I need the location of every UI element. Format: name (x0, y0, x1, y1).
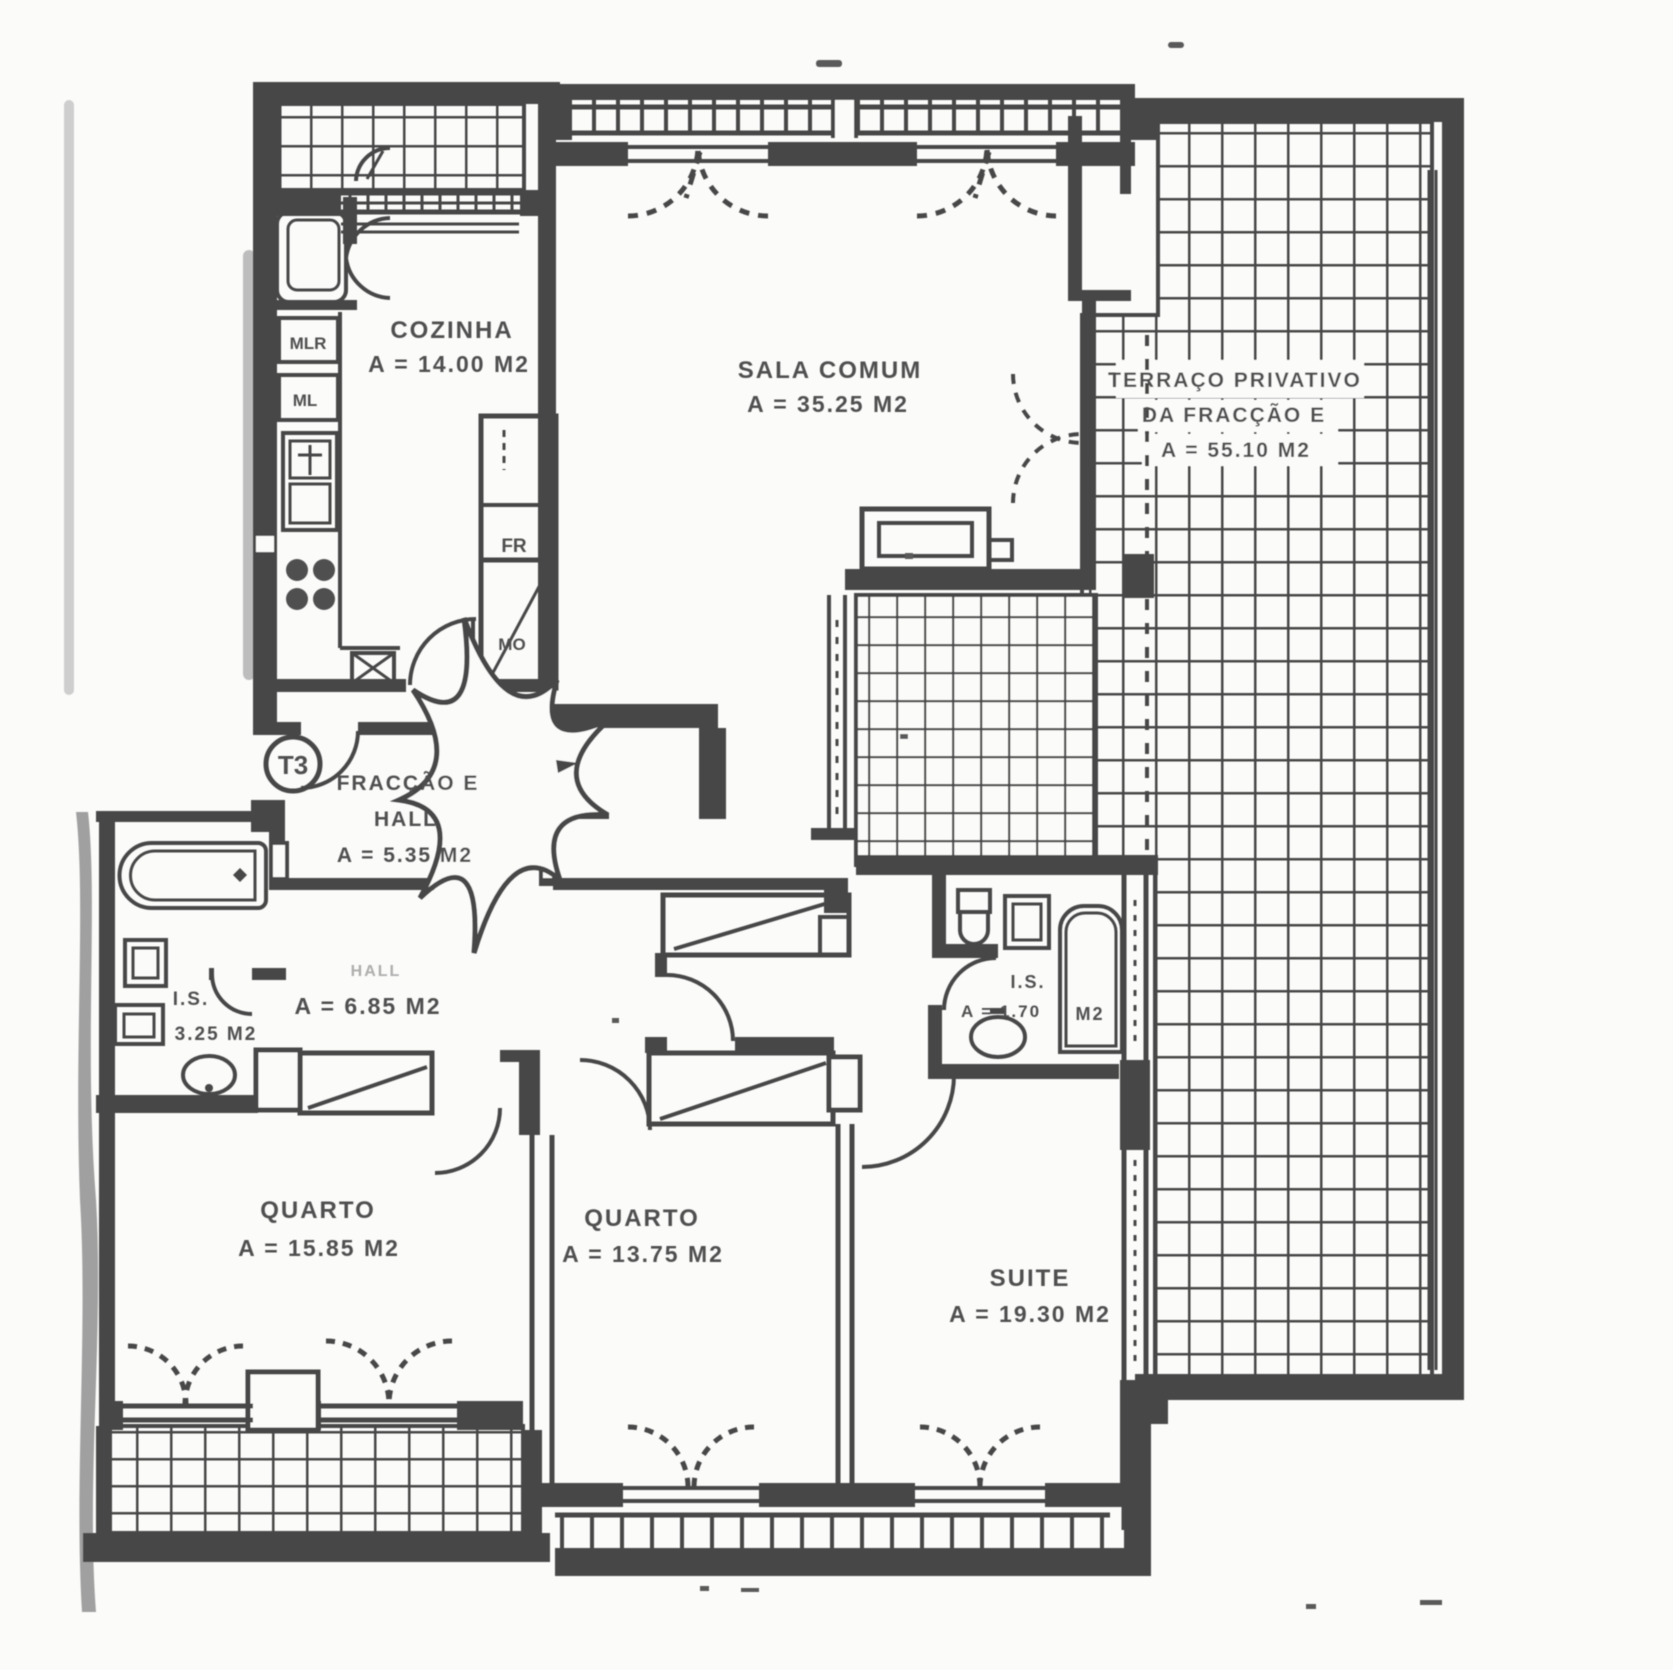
svg-text:QUARTO: QUARTO (584, 1205, 700, 1232)
svg-text:A = 5.35 M2: A = 5.35 M2 (337, 844, 473, 867)
svg-text:A = 19.30 M2: A = 19.30 M2 (949, 1301, 1111, 1327)
svg-text:FRACÇÃO E: FRACÇÃO E (337, 772, 480, 795)
svg-text:A = 13.75 M2: A = 13.75 M2 (562, 1241, 724, 1267)
svg-text:SALA COMUM: SALA COMUM (738, 357, 922, 384)
svg-text:TERRAÇO PRIVATIVO: TERRAÇO PRIVATIVO (1108, 369, 1362, 392)
svg-text:T3: T3 (278, 750, 308, 780)
svg-text:A = 55.10 M2: A = 55.10 M2 (1161, 439, 1311, 462)
svg-text:A = 14.00 M2: A = 14.00 M2 (368, 351, 530, 377)
svg-text:FR: FR (501, 536, 527, 557)
svg-text:3.25 M2: 3.25 M2 (175, 1024, 258, 1045)
svg-text:HALL: HALL (374, 808, 438, 831)
svg-text:DA FRACÇÃO E: DA FRACÇÃO E (1142, 404, 1326, 427)
svg-text:MO: MO (498, 635, 525, 654)
svg-text:I.S.: I.S. (1010, 972, 1045, 992)
svg-text:QUARTO: QUARTO (260, 1197, 376, 1224)
svg-text:I.S.: I.S. (173, 989, 210, 1010)
svg-text:HALL: HALL (351, 963, 402, 980)
svg-text:ML: ML (293, 391, 318, 410)
svg-text:A = 6.85 M2: A = 6.85 M2 (294, 993, 441, 1019)
svg-text:A = 35.25 M2: A = 35.25 M2 (747, 391, 909, 417)
svg-text:A = 15.85 M2: A = 15.85 M2 (238, 1235, 400, 1261)
svg-text:M2: M2 (1075, 1004, 1104, 1024)
svg-text:MLR: MLR (290, 334, 327, 353)
svg-text:SUITE: SUITE (990, 1265, 1071, 1292)
svg-text:COZINHA: COZINHA (390, 317, 513, 344)
svg-text:A = 1.70: A = 1.70 (961, 1002, 1041, 1021)
